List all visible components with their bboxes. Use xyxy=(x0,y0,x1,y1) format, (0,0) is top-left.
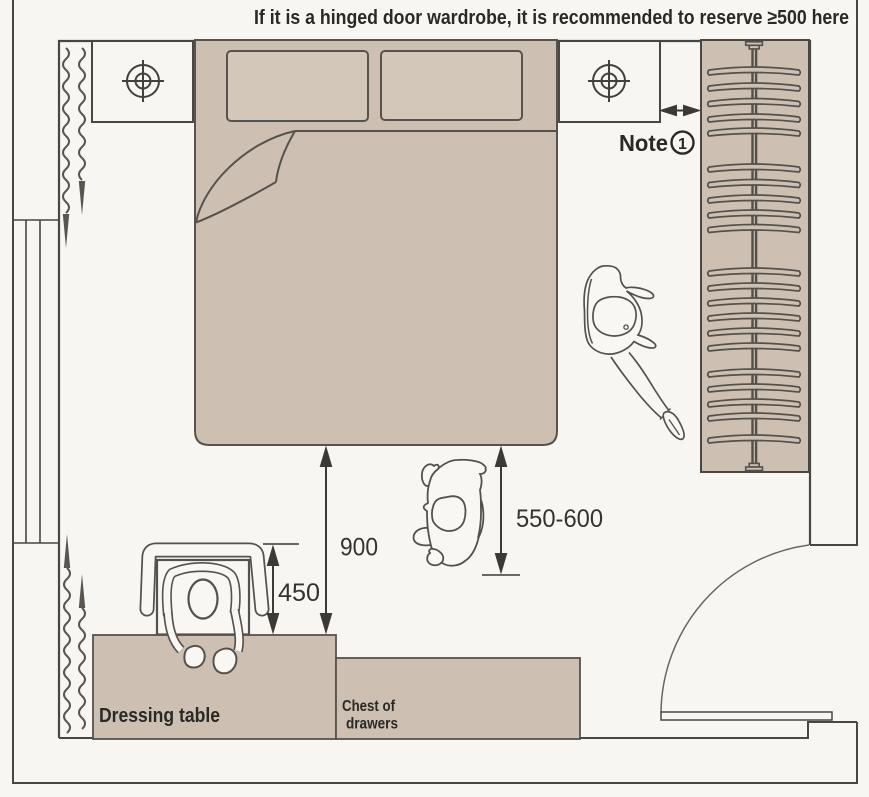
svg-text:Chest of: Chest of xyxy=(342,698,396,715)
svg-text:550-600: 550-600 xyxy=(516,505,603,533)
svg-text:Dressing table: Dressing table xyxy=(99,704,220,727)
svg-text:Note: Note xyxy=(619,130,668,156)
svg-text:450: 450 xyxy=(278,579,320,607)
svg-text:1: 1 xyxy=(678,136,687,153)
svg-text:If it is a hinged door wardrob: If it is a hinged door wardrobe, it is r… xyxy=(254,7,849,29)
svg-text:drawers: drawers xyxy=(346,716,398,733)
svg-text:900: 900 xyxy=(340,534,378,562)
